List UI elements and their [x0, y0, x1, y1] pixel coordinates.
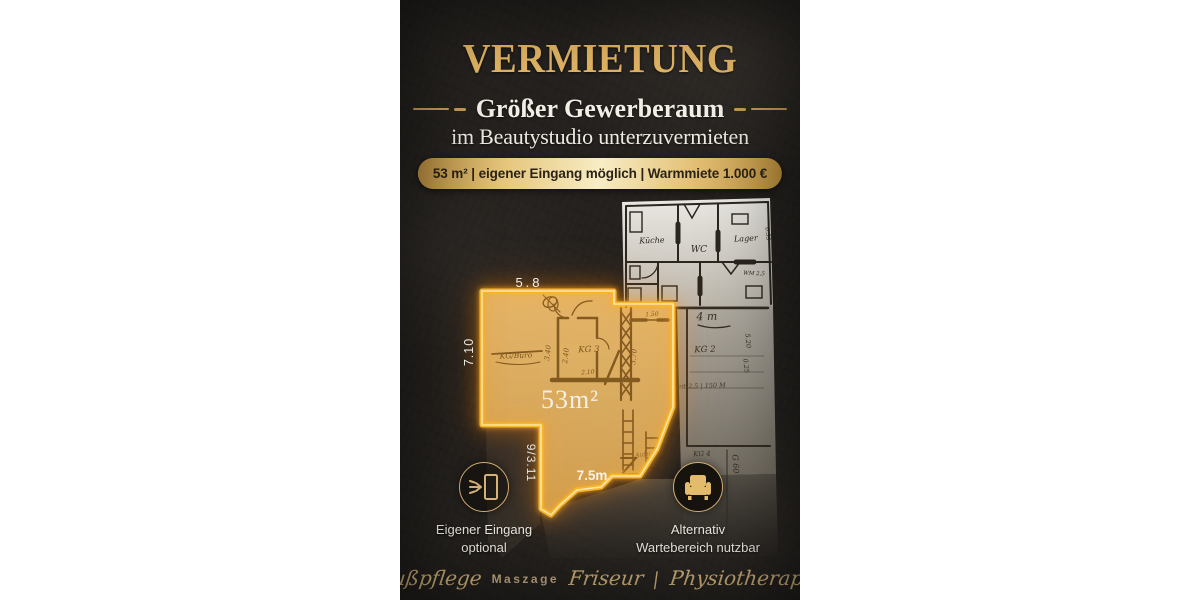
service-friseur: Friseur — [568, 566, 645, 590]
feature-own-entrance: Eigener Eingang optional — [408, 462, 560, 557]
feature-waiting-area: Alternativ Wartebereich nutzbar — [622, 462, 774, 557]
scribble-d8: 0.55 — [763, 227, 771, 241]
dimension-top: 5.8 — [515, 275, 542, 290]
feature-line2: optional — [408, 539, 560, 557]
poster-title: VERMIETUNG — [412, 34, 788, 82]
services-footer: Fußpflege Maszage Friseur | Physiotherap… — [400, 566, 800, 590]
scribble-wm: WM 2,5 — [743, 271, 765, 278]
door-entry-icon — [459, 462, 509, 512]
room-label-kueche: Küche — [638, 236, 665, 246]
feature-line1: Eigener Eingang — [408, 521, 560, 539]
room-label-kg2: KG 2 — [693, 345, 716, 356]
feature-line2: Wartebereich nutzbar — [622, 539, 774, 557]
room-label-kg4: KG 4 — [692, 450, 711, 459]
ornament-right — [734, 108, 787, 111]
area-label: 53m² — [541, 385, 599, 414]
feature-caption: Eigener Eingang optional — [408, 521, 560, 557]
page-background: VERMIETUNG Größer Gewerberaum im Beautys… — [0, 0, 1200, 600]
label-corridor-4m: 4 m — [695, 310, 717, 324]
dimension-left: 7.10 — [462, 338, 476, 366]
scribble-d7: 0.25 — [741, 358, 750, 373]
poster-subtitle: Größer Gewerberaum — [476, 94, 725, 124]
dimension-bottom: 7.5m — [577, 468, 608, 483]
armchair-icon — [673, 462, 723, 512]
ornament-left — [413, 108, 466, 111]
room-label-lager: Lager — [733, 233, 759, 243]
poster-subtitle2: im Beautystudio unterzuvermieten — [400, 124, 800, 150]
service-fusspflege: Fußpflege — [400, 566, 483, 590]
service-physiotherapie: Physiotherapie — [668, 566, 800, 590]
subtitle-row: Größer Gewerberaum — [400, 94, 800, 124]
rental-poster: VERMIETUNG Größer Gewerberaum im Beautys… — [400, 0, 800, 600]
service-massage: Maszage — [492, 572, 560, 586]
service-separator: | — [652, 569, 661, 591]
feature-caption: Alternativ Wartebereich nutzbar — [622, 521, 774, 557]
room-label-wc: WC — [691, 245, 707, 255]
key-facts-badge: 53 m² | eigener Eingang möglich | Warmmi… — [418, 158, 782, 189]
scribble-d6: 5.20 — [743, 333, 752, 348]
feature-line1: Alternativ — [622, 521, 774, 539]
